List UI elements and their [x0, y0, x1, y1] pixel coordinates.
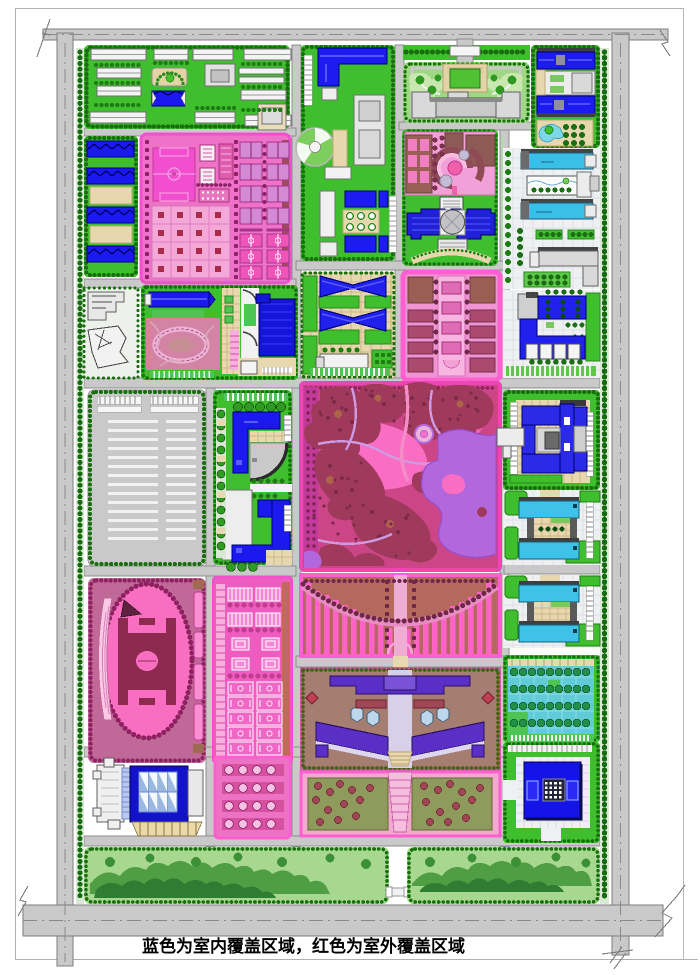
svg-text:xxxxxxx: xxxxxxx: [541, 160, 554, 164]
svg-text:蓝色为室内覆盖区域，红色为室外覆盖区域: 蓝色为室内覆盖区域，红色为室外覆盖区域: [142, 936, 465, 956]
svg-text:xxxxxxx: xxxxxxx: [244, 419, 258, 424]
svg-text:xxxxxxxxx: xxxxxxxxx: [536, 210, 552, 214]
